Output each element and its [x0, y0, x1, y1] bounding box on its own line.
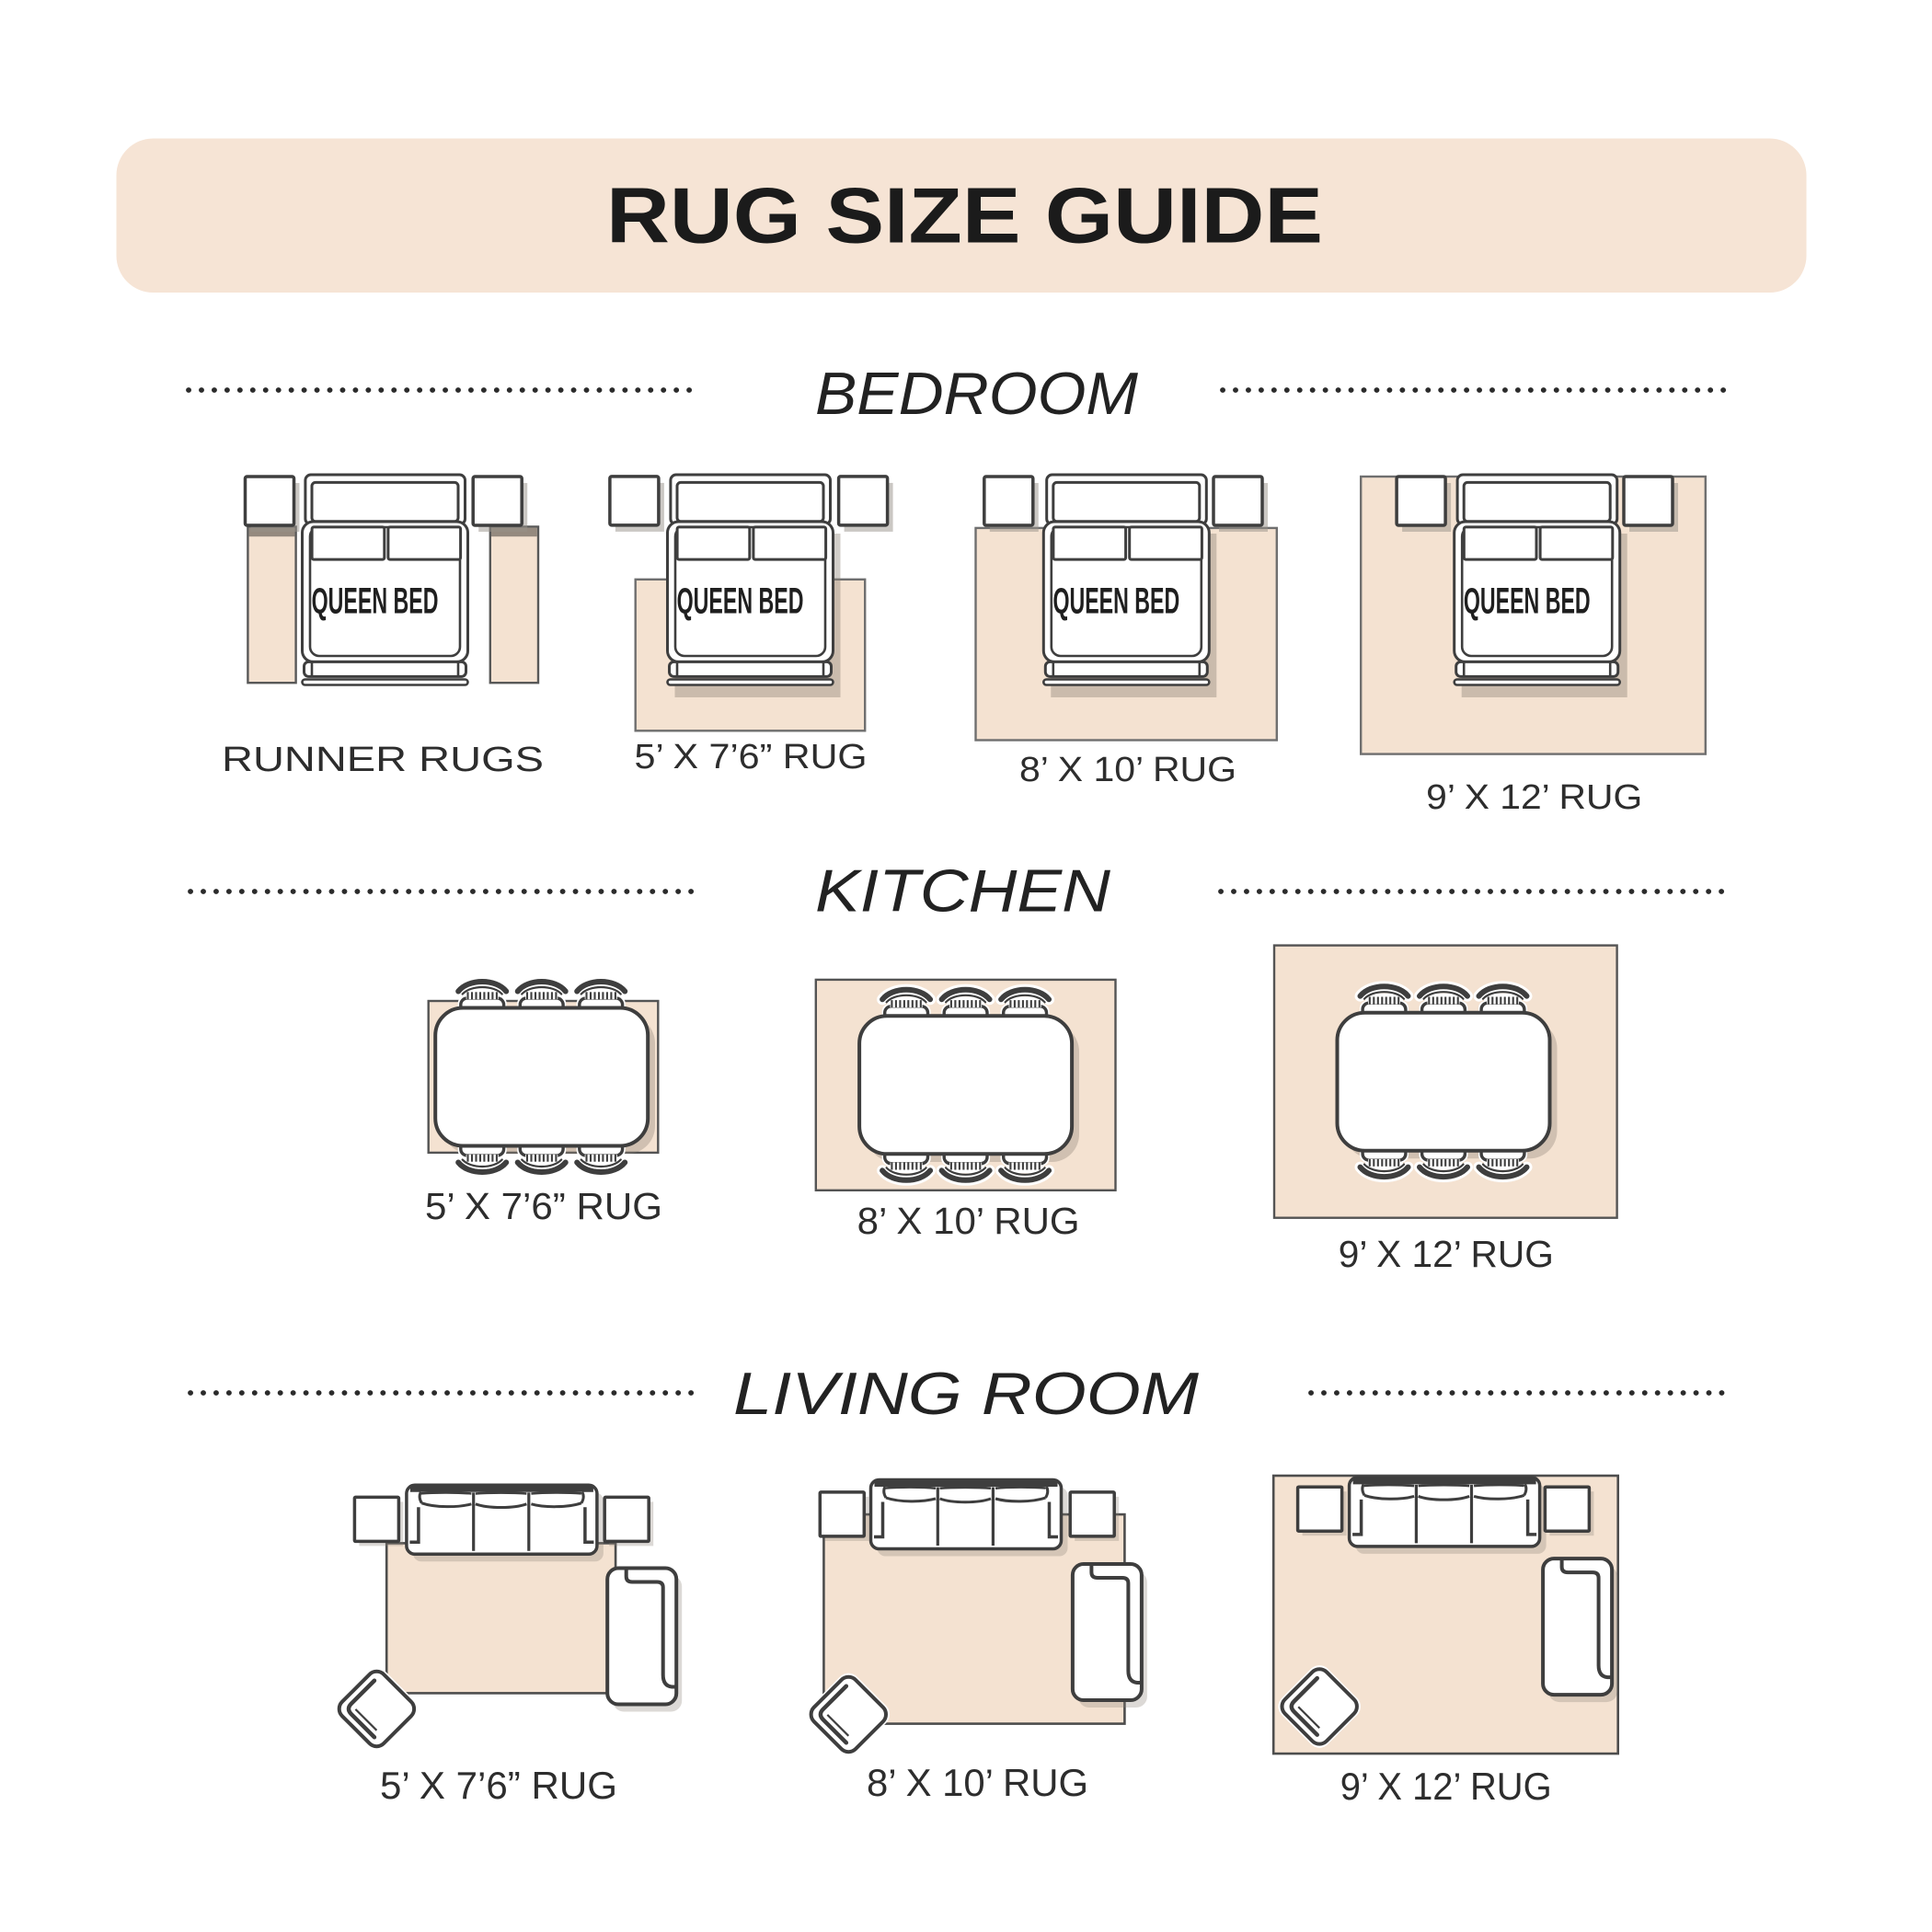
- svg-text:5’ X 7’6” RUG: 5’ X 7’6” RUG: [380, 1764, 617, 1807]
- svg-text:RUG SIZE GUIDE: RUG SIZE GUIDE: [606, 173, 1323, 260]
- svg-text:9’ X 12’ RUG: 9’ X 12’ RUG: [1426, 778, 1642, 817]
- svg-text:8’ X 10’ RUG: 8’ X 10’ RUG: [867, 1761, 1088, 1804]
- svg-text:BEDROOM: BEDROOM: [815, 360, 1139, 427]
- svg-text:RUNNER RUGS: RUNNER RUGS: [222, 741, 544, 779]
- svg-text:5’ X 7’6” RUG: 5’ X 7’6” RUG: [425, 1185, 662, 1227]
- svg-text:8’ X 10’ RUG: 8’ X 10’ RUG: [857, 1200, 1080, 1242]
- svg-text:KITCHEN: KITCHEN: [815, 857, 1110, 925]
- svg-text:9’ X 12’ RUG: 9’ X 12’ RUG: [1340, 1765, 1552, 1808]
- svg-text:LIVING ROOM: LIVING ROOM: [733, 1360, 1200, 1427]
- svg-text:8’ X 10’ RUG: 8’ X 10’ RUG: [1019, 751, 1236, 789]
- svg-text:9’ X 12’ RUG: 9’ X 12’ RUG: [1339, 1233, 1554, 1275]
- svg-text:5’ X 7’6” RUG: 5’ X 7’6” RUG: [635, 738, 868, 776]
